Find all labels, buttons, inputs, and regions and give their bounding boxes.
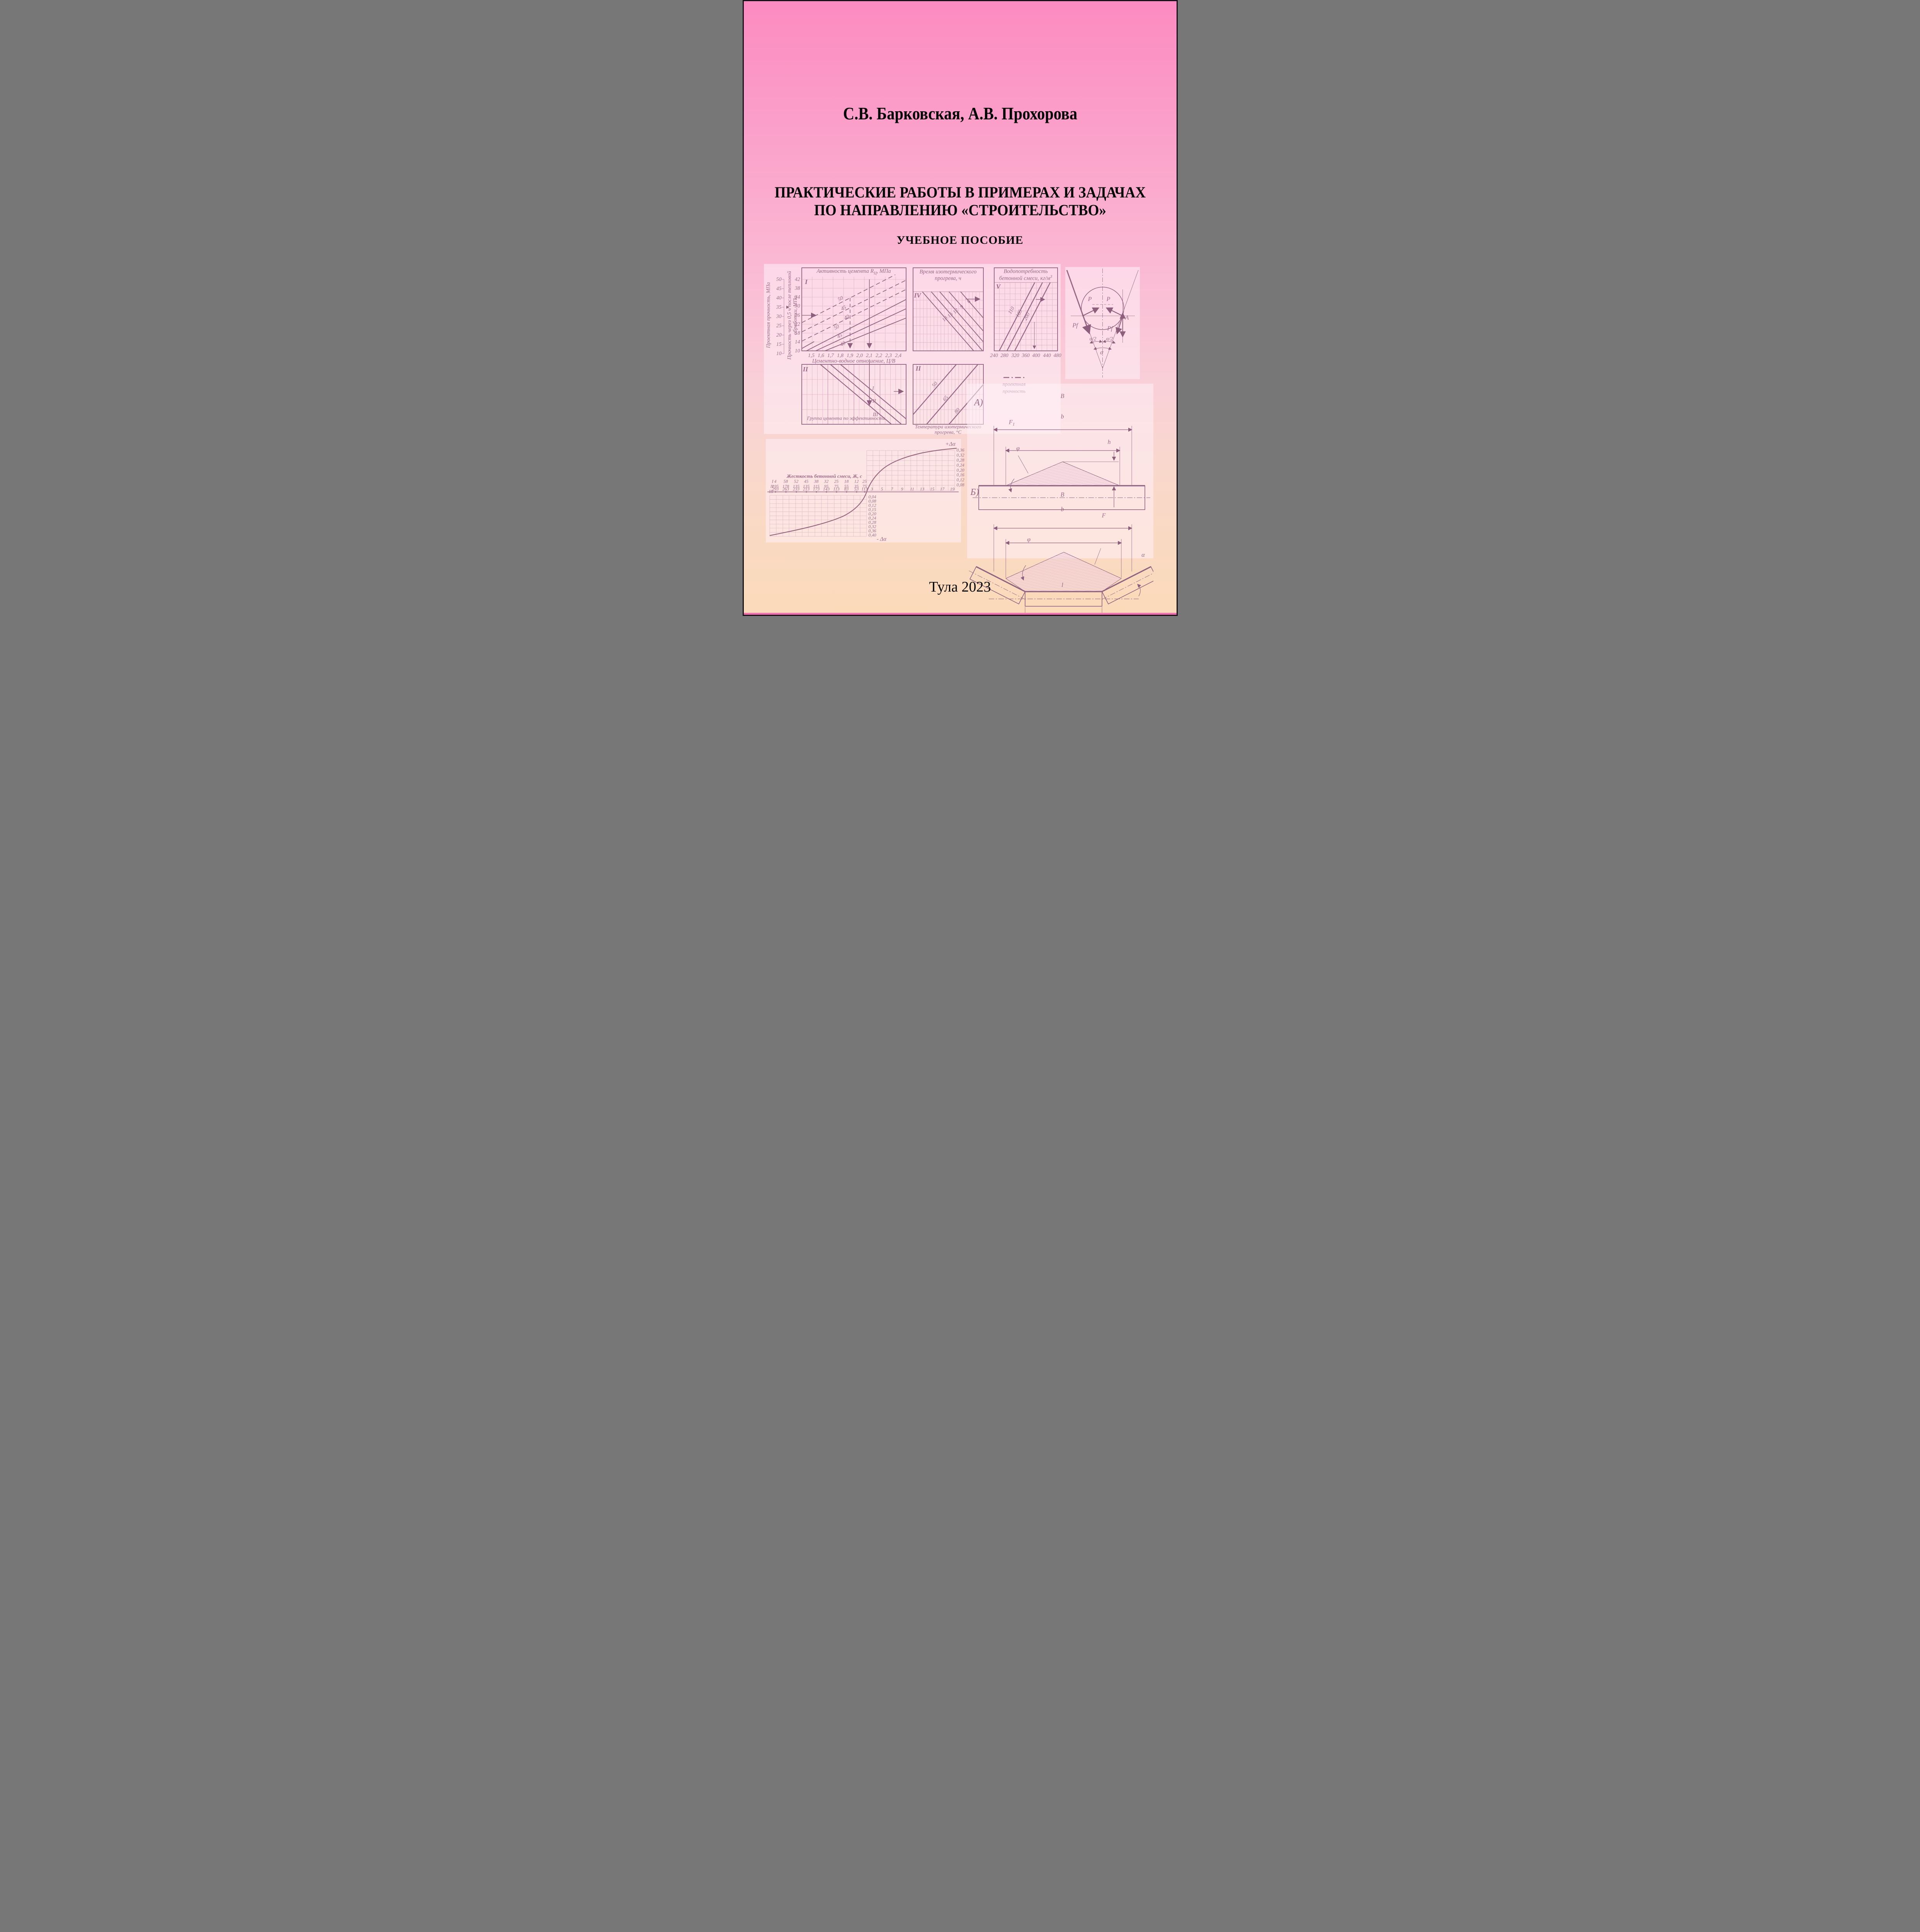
scale2-tick: 22 — [795, 321, 800, 327]
x-right-tick: 7 — [891, 487, 893, 492]
point-a-label: A — [1125, 315, 1129, 321]
force-pf-left-label: Pf — [1072, 322, 1078, 329]
qv-label: V — [996, 283, 1000, 291]
force-p-left-label: P — [1088, 296, 1092, 303]
cv-tick: 1,5 — [808, 352, 815, 359]
row3-val: 173 — [813, 487, 820, 492]
axis-design-strength-label: Проектная прочность, МПа — [765, 275, 771, 356]
qv-tick: 480 — [1053, 352, 1061, 359]
half-angle-right-label: α/2 — [1106, 336, 1113, 342]
x-right-tick: 3 — [871, 487, 873, 492]
row1-val: 58 — [784, 479, 788, 484]
row3-val: 113 — [861, 487, 867, 492]
q4-title-line2: прогрева, ч — [935, 276, 961, 282]
scale1-tick: 45 — [776, 286, 782, 292]
qt-title-line2: прогрева, °С — [935, 430, 961, 435]
scale1-tick: 35 — [776, 304, 782, 310]
flat-height-label: h — [1108, 439, 1111, 446]
cv-tick: 1,6 — [818, 352, 824, 359]
flat-dim-B-label: B — [1061, 393, 1065, 400]
q4-label: IV — [914, 292, 921, 299]
minus-delta-alpha-label: - Δα — [877, 536, 886, 543]
scale1-tick: 20 — [776, 332, 782, 338]
row1-val: 25 — [834, 479, 839, 484]
scale2-tick: 34 — [795, 294, 800, 300]
q4-title-line1: Время изотермического — [920, 269, 977, 276]
row1-val: 12 — [854, 479, 859, 484]
stiffness-chart-panel: +Δα 0,36 0,32 0,28 0,24 0,20 0,16 0,12 0… — [766, 439, 961, 543]
y-plus-tick: 0,24 — [957, 463, 964, 468]
qv-tick: 360 — [1022, 352, 1029, 359]
alpha-label: α — [1100, 349, 1103, 356]
strength-scale-bracket — [782, 279, 784, 354]
y-plus-tick: 0,28 — [957, 458, 964, 463]
cover-title-line1: ПРАКТИЧЕСКИЕ РАБОТЫ В ПРИМЕРАХ И ЗАДАЧАХ — [759, 184, 1162, 201]
row3-val: 113 — [833, 487, 839, 492]
force-pf-right-label: Pf — [1107, 325, 1112, 332]
scale1-tick: 10 — [776, 350, 782, 357]
cover-title: ПРАКТИЧЕСКИЕ РАБОТЫ В ПРИМЕРАХ И ЗАДАЧАХ… — [759, 184, 1162, 219]
row1-val: 32 — [824, 479, 829, 484]
qv-title-line2: бетонной смеси, кг/м3 — [999, 275, 1052, 282]
q2-line-label: I — [872, 385, 874, 391]
scale2-tick: 14 — [795, 339, 800, 345]
cv-tick: 2,3 — [885, 352, 892, 359]
force-p-right-label: P — [1107, 296, 1111, 303]
q1-title: Активность цемента RЦ, МПа — [816, 268, 891, 276]
stiffness-grids — [770, 451, 955, 536]
x-right-tick: 11 — [910, 487, 914, 492]
row3-val: 53 — [854, 487, 859, 492]
q2-line-label: II — [872, 398, 876, 404]
row1-val: 18 — [844, 479, 849, 484]
pressure-diagram-panel: P P Pf Pf A α/2 α/2 α — [1065, 267, 1140, 379]
cv-axis-title: Цементно-водное отношение, Ц/В — [812, 358, 895, 365]
x-right-tick: 13 — [920, 487, 925, 492]
plus-delta-alpha-label: +Δα — [945, 441, 956, 447]
y-plus-tick: 0,36 — [957, 448, 964, 453]
scale2-tick: 42 — [795, 276, 800, 282]
qv-title-line1: Водопотребность — [1003, 269, 1048, 275]
bottom-accent-strip — [744, 613, 1177, 615]
q4-isolines — [922, 292, 983, 351]
scale1-tick: 30 — [776, 313, 782, 320]
cover-title-line2: ПО НАПРАВЛЕНИЮ «СТРОИТЕЛЬСТВО» — [759, 201, 1162, 219]
x-right-tick: 5 — [881, 487, 883, 492]
scale1-tick: 15 — [776, 341, 782, 347]
scale1-tick: 50 — [776, 276, 782, 282]
cover-imprint: Тула 2023 — [744, 578, 1177, 595]
y-plus-tick: 0,32 — [957, 453, 964, 458]
scale2-tick: 38 — [795, 285, 800, 291]
row3-val: 263 — [782, 487, 789, 492]
flat-area-F1-label: F1 — [1009, 419, 1015, 427]
trough-dim-b-label: b — [1061, 506, 1064, 513]
cv-tick: 2,0 — [856, 352, 863, 359]
cv-tick: 1,8 — [837, 352, 844, 359]
qv-tick: 320 — [1011, 352, 1019, 359]
trough-dim-B-label: B — [1061, 492, 1065, 498]
q2-title: Группа цемента по эффективности — [807, 416, 885, 422]
cv-tick: 1,9 — [847, 352, 853, 359]
scale1-tick: 40 — [776, 295, 782, 301]
qv-tick: 240 — [990, 352, 998, 359]
q1-label: I — [805, 278, 808, 286]
trough-phi-label: φ — [1027, 536, 1031, 543]
scale1-tick: 25 — [776, 323, 782, 329]
y-plus-tick: 0,16 — [957, 473, 964, 478]
scale2-tick: 10 — [795, 348, 800, 354]
scale2-tick: 30 — [795, 303, 800, 309]
cover-subtitle: УЧЕБНОЕ ПОСОБИЕ — [744, 234, 1177, 247]
trough-area-F-label: F — [1102, 512, 1106, 519]
row3-val: 83 — [844, 487, 849, 492]
trough-alpha-label: α — [1141, 552, 1145, 559]
y-plus-tick: 0,08 — [957, 483, 964, 488]
belt-diagrams-panel: А) B b F1 φ h Б) B b F φ α l — [967, 384, 1153, 558]
flat-phi-label: φ — [1016, 445, 1020, 452]
qv-tick: 400 — [1032, 352, 1040, 359]
row1-val: 25 — [862, 479, 867, 484]
x-right-tick: 19 — [950, 487, 955, 492]
cv-tick: 2,4 — [895, 352, 901, 359]
book-cover-page: С.В. Барковская, А.В. Прохорова ПРАКТИЧЕ… — [743, 0, 1178, 616]
qt-label: II — [916, 365, 921, 372]
cv-tick: 2,2 — [876, 352, 882, 359]
scale2-tick: 18 — [795, 330, 800, 336]
row1-val: 52 — [794, 479, 799, 484]
cover-authors: С.В. Барковская, А.В. Прохорова — [770, 103, 1151, 124]
qv-tick: 440 — [1043, 352, 1051, 359]
qv-tick: 280 — [1000, 352, 1008, 359]
flat-dim-b-label: b — [1061, 413, 1064, 420]
x-right-tick: 9 — [901, 487, 903, 492]
half-angle-left-label: α/2 — [1090, 336, 1097, 342]
x-right-tick: 15 — [930, 487, 935, 492]
q2-label: II — [803, 366, 808, 373]
row1-val: 45 — [804, 479, 809, 484]
y-plus-tick: 0,12 — [957, 478, 964, 483]
trough-belt-diagram — [967, 524, 1153, 616]
row1-val: 4 — [774, 479, 777, 484]
y-minus-tick: 0,40 — [869, 533, 876, 538]
row-label: I — [772, 479, 774, 484]
diagram-a-label: А) — [974, 398, 983, 408]
row3-val: 293 — [772, 487, 779, 492]
row3-val: 233 — [793, 487, 799, 492]
diagram-b-label: Б) — [970, 487, 979, 498]
x-right-tick: 17 — [940, 487, 945, 492]
cv-tick: 1,7 — [827, 352, 834, 359]
row3-val: 143 — [823, 487, 830, 492]
scale2-tick: 26 — [795, 312, 800, 318]
row3-val: 213 — [803, 487, 809, 492]
row1-val: 38 — [814, 479, 819, 484]
cv-tick: 2,1 — [866, 352, 872, 359]
stiffness-header: Жесткость бетонной смеси, Ж, с — [787, 474, 862, 480]
